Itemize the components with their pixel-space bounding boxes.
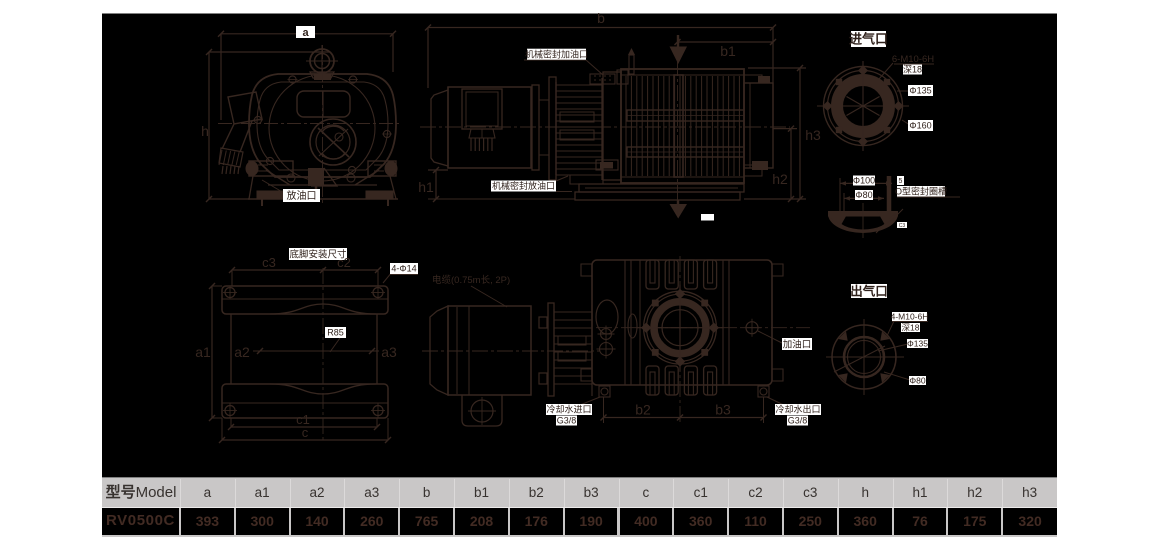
svg-text:h2: h2 (772, 171, 788, 187)
svg-text:b2: b2 (635, 402, 651, 418)
svg-text:G3/8: G3/8 (788, 416, 808, 426)
svg-text:Φ160: Φ160 (909, 121, 931, 131)
svg-text:h: h (201, 123, 209, 139)
svg-text:冷却水进口: 冷却水进口 (546, 404, 591, 415)
svg-text:4-Φ14: 4-Φ14 (391, 264, 416, 274)
svg-text:机械密封放油口: 机械密封放油口 (492, 180, 555, 191)
svg-text:b3: b3 (715, 402, 731, 418)
svg-text:c2: c2 (337, 255, 351, 270)
svg-text:Φ100: Φ100 (853, 176, 875, 186)
svg-text:c: c (302, 425, 309, 440)
svg-text:5: 5 (899, 178, 903, 185)
svg-text:a: a (302, 27, 309, 39)
svg-text:b: b (597, 10, 605, 26)
svg-text:Φ80: Φ80 (855, 190, 872, 200)
svg-text:机械密封加油口: 机械密封加油口 (525, 48, 588, 59)
svg-text:b1: b1 (720, 43, 736, 59)
svg-text:冷却水出口: 冷却水出口 (775, 404, 820, 415)
svg-text:进气口: 进气口 (849, 32, 888, 47)
svg-text:R85: R85 (327, 328, 344, 338)
svg-text:h1: h1 (418, 179, 434, 195)
svg-text:a1: a1 (195, 344, 211, 360)
svg-text:深18: 深18 (902, 323, 920, 333)
svg-text:G3/8: G3/8 (557, 416, 577, 426)
svg-text:6-M10-6H: 6-M10-6H (892, 54, 934, 65)
svg-text:h3: h3 (805, 127, 821, 143)
svg-text:Φ80: Φ80 (909, 376, 926, 386)
svg-text:放油口: 放油口 (287, 189, 317, 202)
svg-text:出气口: 出气口 (850, 284, 888, 299)
svg-text:a3: a3 (381, 344, 397, 360)
svg-text:4-M10-6H: 4-M10-6H (891, 312, 929, 322)
svg-text:Φ135: Φ135 (909, 86, 931, 96)
svg-text:a2: a2 (234, 344, 250, 360)
svg-text:Φ135: Φ135 (907, 339, 928, 349)
svg-text:深18: 深18 (903, 65, 922, 75)
svg-text:O型密封圈槽: O型密封圈槽 (895, 186, 947, 197)
svg-text:电缆(0.75m长, 2P): 电缆(0.75m长, 2P) (432, 274, 510, 286)
svg-text:加油口: 加油口 (783, 338, 812, 350)
svg-text:C3: C3 (899, 223, 906, 229)
svg-text:c3: c3 (262, 255, 276, 270)
